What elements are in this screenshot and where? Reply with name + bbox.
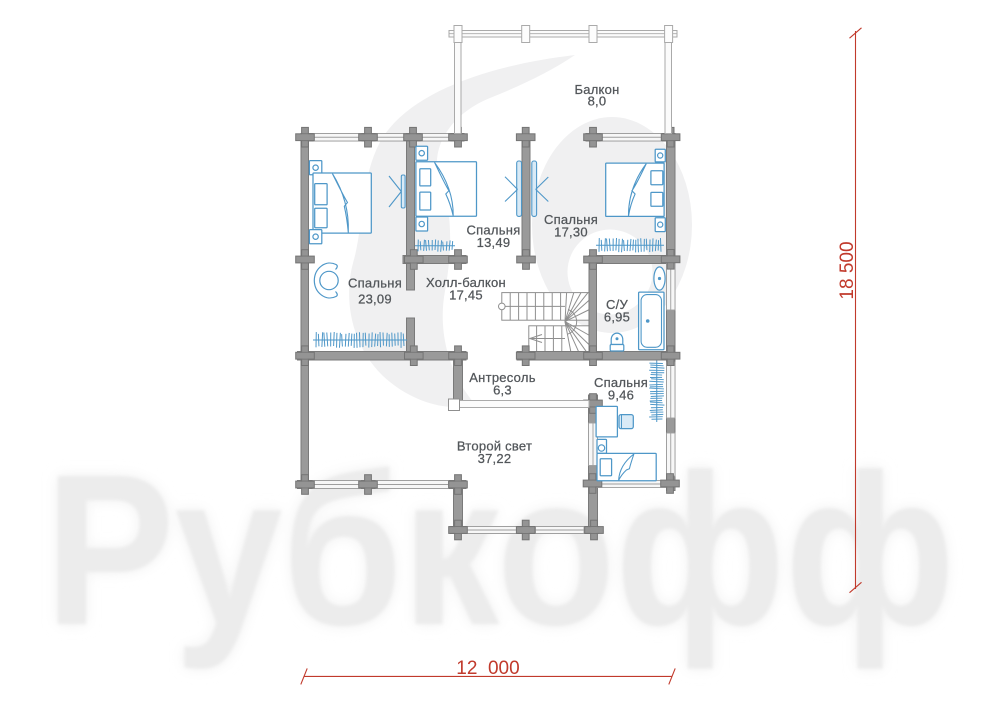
svg-text:13,49: 13,49 (477, 235, 511, 250)
svg-text:17,30: 17,30 (554, 224, 588, 239)
svg-text:Спальня: Спальня (348, 276, 402, 291)
svg-text:23,09: 23,09 (358, 291, 392, 306)
svg-text:9,46: 9,46 (608, 388, 634, 403)
svg-text:6,95: 6,95 (604, 309, 630, 324)
svg-text:17,45: 17,45 (449, 287, 483, 302)
svg-text:18 500: 18 500 (837, 241, 858, 299)
svg-text:37,22: 37,22 (478, 451, 512, 466)
svg-text:6,3: 6,3 (493, 383, 512, 398)
svg-text:8,0: 8,0 (588, 94, 607, 109)
svg-text:12 000: 12 000 (456, 658, 519, 679)
